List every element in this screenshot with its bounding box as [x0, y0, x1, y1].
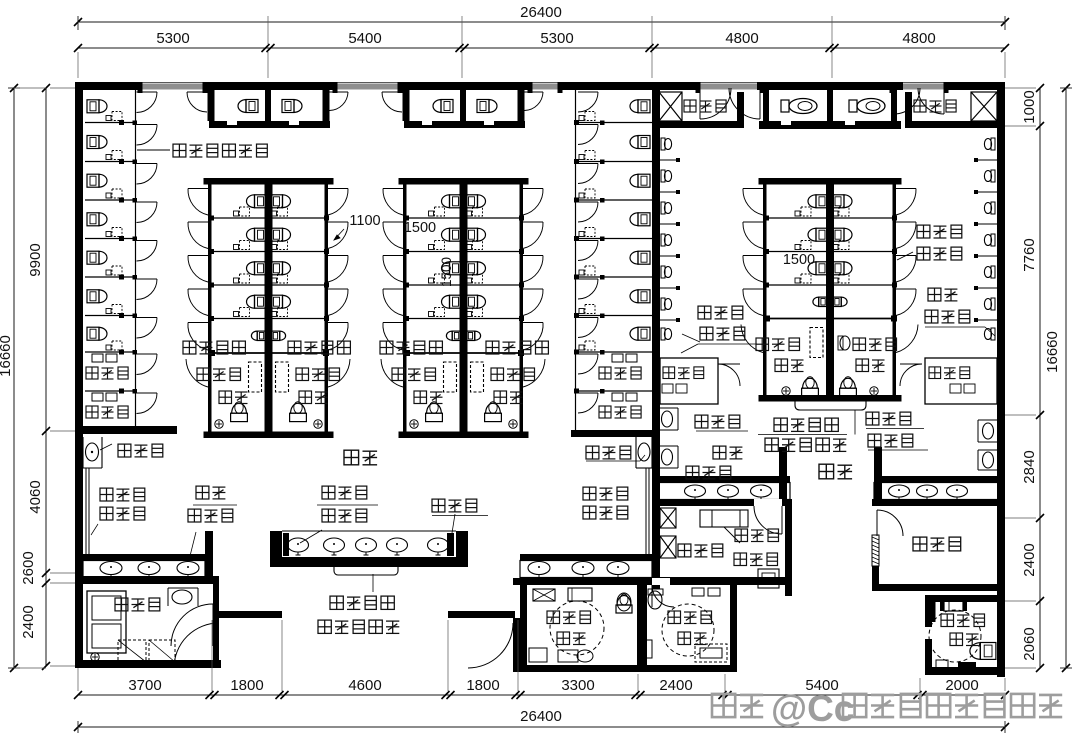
svg-text:1100: 1100 [349, 213, 380, 229]
svg-text:1800: 1800 [230, 677, 263, 694]
svg-text:3700: 3700 [128, 677, 161, 694]
svg-text:2400: 2400 [659, 677, 692, 694]
svg-text:1000: 1000 [1021, 90, 1038, 123]
svg-text:16660: 16660 [1044, 331, 1061, 373]
svg-text:5400: 5400 [348, 30, 381, 47]
svg-text:2600: 2600 [20, 551, 37, 584]
svg-text:2000: 2000 [945, 677, 978, 694]
svg-text:1500: 1500 [439, 257, 454, 287]
svg-text:16660: 16660 [0, 335, 14, 377]
svg-text:5300: 5300 [540, 30, 573, 47]
svg-text:1500: 1500 [783, 252, 815, 268]
svg-text:4060: 4060 [27, 480, 44, 513]
svg-text:4800: 4800 [902, 30, 935, 47]
svg-text:2400: 2400 [20, 605, 37, 638]
svg-text:9900: 9900 [27, 243, 44, 276]
svg-text:26400: 26400 [520, 4, 562, 21]
svg-text:5300: 5300 [156, 30, 189, 47]
svg-text:4600: 4600 [348, 677, 381, 694]
svg-text:1500: 1500 [404, 220, 436, 236]
svg-text:26400: 26400 [520, 708, 562, 725]
svg-text:2400: 2400 [1021, 543, 1038, 576]
svg-text:2060: 2060 [1021, 627, 1038, 660]
svg-text:3300: 3300 [561, 677, 594, 694]
svg-text:1800: 1800 [466, 677, 499, 694]
svg-text:4800: 4800 [725, 30, 758, 47]
svg-text:2840: 2840 [1021, 450, 1038, 483]
svg-text:7760: 7760 [1021, 238, 1038, 271]
